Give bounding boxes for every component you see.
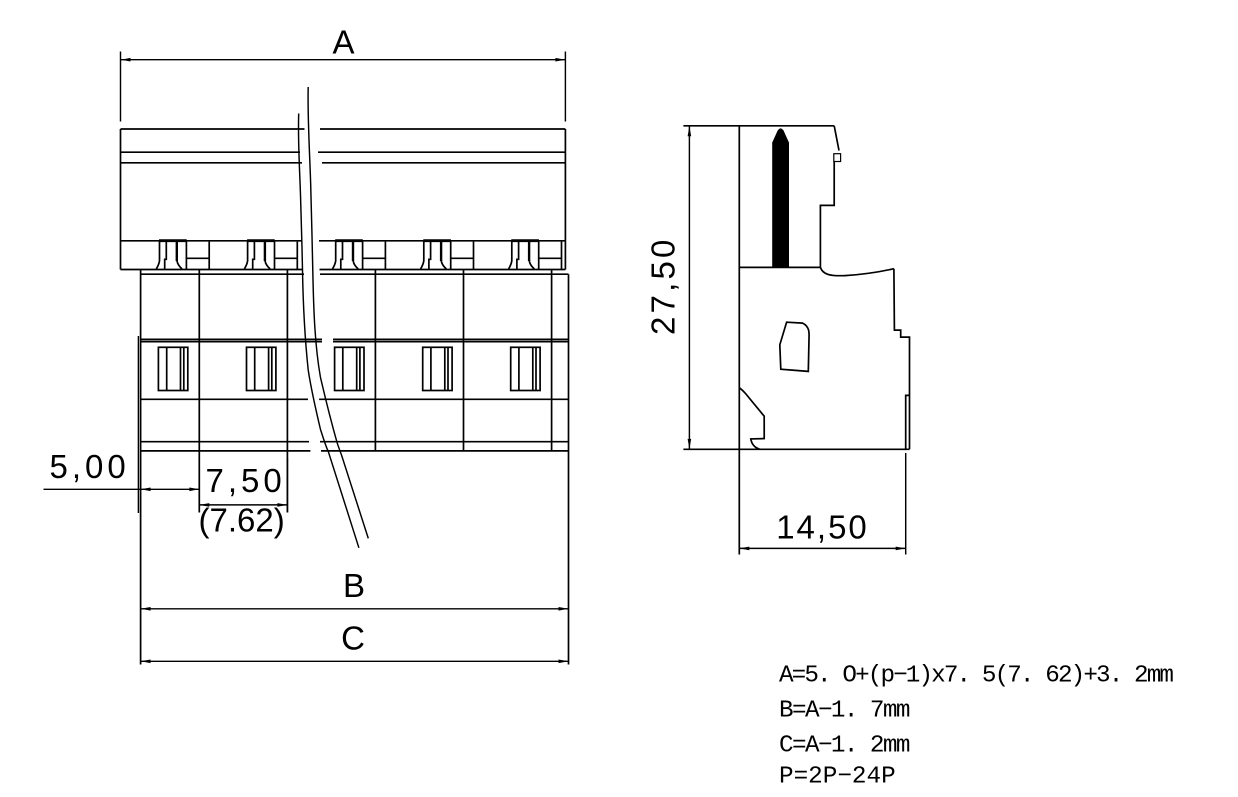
svg-text:7,50: 7,50 — [206, 462, 286, 499]
svg-text:C=A−1. 2mm: C=A−1. 2mm — [779, 732, 910, 759]
svg-text:B: B — [343, 567, 365, 604]
svg-text:A=5. O+(p−1)x7. 5(7. 62)+3. 2m: A=5. O+(p−1)x7. 5(7. 62)+3. 2mm — [779, 663, 1173, 690]
svg-text:B=A−1. 7mm: B=A−1. 7mm — [779, 697, 910, 724]
svg-text:C: C — [341, 620, 365, 657]
svg-text:A: A — [332, 24, 354, 61]
svg-text:P=2P−24P: P=2P−24P — [779, 763, 896, 790]
svg-text:27,50: 27,50 — [645, 236, 682, 335]
svg-text:(7.62): (7.62) — [199, 502, 285, 539]
svg-text:14,50: 14,50 — [776, 509, 869, 546]
svg-text:5,00: 5,00 — [50, 448, 130, 485]
